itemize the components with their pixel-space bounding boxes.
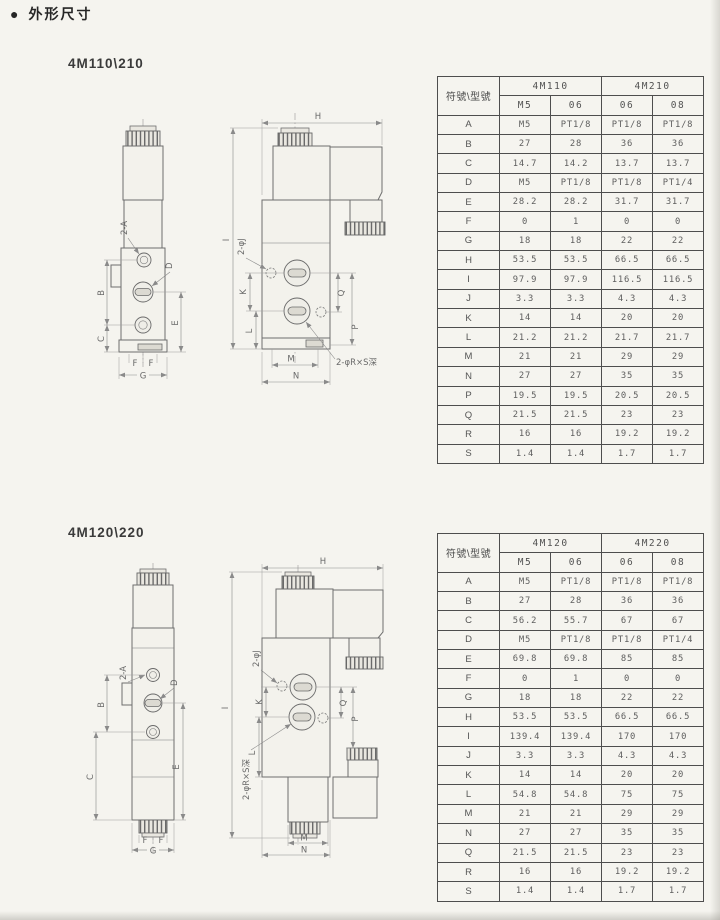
side-tab xyxy=(122,683,132,705)
dimension-value: 13.7 xyxy=(653,154,704,173)
dimension-value: 28 xyxy=(551,135,602,154)
table-row: I139.4139.4170170 xyxy=(438,727,704,746)
dimension-value: 35 xyxy=(602,367,653,386)
dim-label-f2: F xyxy=(149,359,154,369)
dim-label-f1: F xyxy=(143,836,148,846)
dimension-value: 4.3 xyxy=(602,746,653,765)
table-corner-header: 符號\型號 xyxy=(438,534,500,573)
front-view-4m110: H I 2-φJ K L Q P M N xyxy=(222,112,385,385)
dimension-value: 19.2 xyxy=(653,425,704,444)
dimension-value: 19.5 xyxy=(551,386,602,405)
dim-label-g: G xyxy=(150,847,157,857)
dimension-value: 53.5 xyxy=(500,708,551,727)
dim-label-q: Q xyxy=(337,289,347,296)
row-symbol: F xyxy=(438,212,500,231)
dimension-value: 28 xyxy=(551,592,602,611)
row-symbol: H xyxy=(438,251,500,270)
dimension-value: 21.5 xyxy=(551,843,602,862)
row-symbol: S xyxy=(438,882,500,901)
dimension-value: 18 xyxy=(551,688,602,707)
dimension-value: 22 xyxy=(602,688,653,707)
dimension-value: 14 xyxy=(500,309,551,328)
dimension-value: PT1/8 xyxy=(653,572,704,591)
dim-label-m: M xyxy=(300,834,307,844)
dimension-value: 170 xyxy=(602,727,653,746)
dimension-value: 1.7 xyxy=(602,444,653,463)
dimension-value: 18 xyxy=(500,231,551,250)
dimension-value: 75 xyxy=(653,785,704,804)
dim-label-2a: 2-A xyxy=(119,666,129,680)
dimension-value: 29 xyxy=(653,347,704,366)
port-size-header: M5 xyxy=(500,553,551,572)
dim-label-e: E xyxy=(172,764,182,769)
port-size-header: 06 xyxy=(602,553,653,572)
dimension-value: 69.8 xyxy=(551,650,602,669)
dimension-value: 4.3 xyxy=(653,289,704,308)
table-row: K14142020 xyxy=(438,766,704,785)
dimension-value: 19.2 xyxy=(602,862,653,881)
dimension-value: 97.9 xyxy=(500,270,551,289)
dimension-value: 23 xyxy=(602,405,653,424)
model-group-header: 4M220 xyxy=(602,534,704,553)
model-group-header: 4M120 xyxy=(500,534,602,553)
side-view-4m110: 2-A D B C E F F G xyxy=(97,119,186,382)
connector-housing-bottom xyxy=(333,777,377,818)
table-row: N27273535 xyxy=(438,367,704,386)
dim-label-l: L xyxy=(245,328,255,333)
dimension-value: 139.4 xyxy=(500,727,551,746)
dimension-value: 53.5 xyxy=(500,251,551,270)
row-symbol: N xyxy=(438,367,500,386)
solenoid-coil xyxy=(276,589,333,638)
table-row: J3.33.34.34.3 xyxy=(438,746,704,765)
dimension-value: 0 xyxy=(500,212,551,231)
table-row: L54.854.87575 xyxy=(438,785,704,804)
table-row: F0100 xyxy=(438,212,704,231)
model-group-header: 4M110 xyxy=(500,77,602,96)
dimension-value: 66.5 xyxy=(653,708,704,727)
table-row: Q21.521.52323 xyxy=(438,405,704,424)
dim-label-d: D xyxy=(165,262,175,269)
table-row: E28.228.231.731.7 xyxy=(438,193,704,212)
dimension-value: 66.5 xyxy=(653,251,704,270)
table-row: N27273535 xyxy=(438,824,704,843)
dimension-value: 27 xyxy=(500,592,551,611)
table-row: DM5PT1/8PT1/8PT1/4 xyxy=(438,630,704,649)
dimension-value: PT1/8 xyxy=(602,115,653,134)
row-symbol: I xyxy=(438,270,500,289)
dimension-value: 14 xyxy=(500,766,551,785)
dimension-value: 1.7 xyxy=(653,444,704,463)
dimension-value: 27 xyxy=(551,367,602,386)
row-symbol: B xyxy=(438,592,500,611)
dimension-value: 28.2 xyxy=(500,193,551,212)
dimension-value: 35 xyxy=(653,367,704,386)
dimension-value: 23 xyxy=(653,843,704,862)
port-size-header: 08 xyxy=(653,553,704,572)
dimension-value: 0 xyxy=(602,212,653,231)
row-symbol: I xyxy=(438,727,500,746)
dim-label-c: C xyxy=(97,336,107,342)
dimension-value: PT1/8 xyxy=(602,572,653,591)
table-row: P19.519.520.520.5 xyxy=(438,386,704,405)
port-size-header: 06 xyxy=(602,96,653,115)
dimension-value: 14.7 xyxy=(500,154,551,173)
row-symbol: K xyxy=(438,766,500,785)
table-row: DM5PT1/8PT1/8PT1/4 xyxy=(438,173,704,192)
dimension-value: 27 xyxy=(500,367,551,386)
table-row: S1.41.41.71.7 xyxy=(438,444,704,463)
table-row: H53.553.566.566.5 xyxy=(438,251,704,270)
dimension-value: 19.2 xyxy=(602,425,653,444)
dimension-value: 29 xyxy=(602,804,653,823)
dimension-value: 35 xyxy=(653,824,704,843)
dimension-value: 21.7 xyxy=(653,328,704,347)
dimension-value: 75 xyxy=(602,785,653,804)
dimension-value: 21 xyxy=(500,347,551,366)
table-row: AM5PT1/8PT1/8PT1/8 xyxy=(438,572,704,591)
dimension-value: 1.4 xyxy=(500,444,551,463)
dimension-value: 1 xyxy=(551,212,602,231)
dimension-value: PT1/4 xyxy=(653,630,704,649)
dim-label-f1: F xyxy=(133,359,138,369)
port-size-header: 06 xyxy=(551,96,602,115)
dimension-value: PT1/4 xyxy=(653,173,704,192)
dimension-value: 66.5 xyxy=(602,708,653,727)
page-heading: ● 外形尺寸 xyxy=(10,4,92,24)
dim-label-f2: F xyxy=(159,836,164,846)
table-row: H53.553.566.566.5 xyxy=(438,708,704,727)
row-symbol: P xyxy=(438,386,500,405)
dimension-value: M5 xyxy=(500,630,551,649)
dimension-value: PT1/8 xyxy=(551,630,602,649)
row-symbol: C xyxy=(438,154,500,173)
solenoid-cap-ribs-bottom xyxy=(290,822,320,834)
dim-label-n: N xyxy=(301,846,307,856)
dimension-value: 22 xyxy=(653,688,704,707)
dim-label-2phir: 2-φR×S深 xyxy=(336,358,378,368)
table-row: C14.714.213.713.7 xyxy=(438,154,704,173)
dimension-value: 23 xyxy=(602,843,653,862)
row-symbol: J xyxy=(438,289,500,308)
row-symbol: G xyxy=(438,231,500,250)
row-symbol: Q xyxy=(438,843,500,862)
dim-label-i: I xyxy=(222,239,232,242)
row-symbol: D xyxy=(438,173,500,192)
catalog-page: { "page": { "bullet": "●", "heading": "外… xyxy=(0,0,720,920)
dimension-value: 4.3 xyxy=(602,289,653,308)
dimension-value: 1.7 xyxy=(653,882,704,901)
cable-gland-ribs xyxy=(346,657,383,669)
dimension-value: 1 xyxy=(551,669,602,688)
dimension-value: PT1/8 xyxy=(602,173,653,192)
dim-label-n: N xyxy=(293,372,299,382)
row-symbol: B xyxy=(438,135,500,154)
dimension-value: 67 xyxy=(653,611,704,630)
row-symbol: S xyxy=(438,444,500,463)
solenoid-coil xyxy=(273,146,330,200)
dimension-value: 21.7 xyxy=(602,328,653,347)
dimension-value: 170 xyxy=(653,727,704,746)
table-row: E69.869.88585 xyxy=(438,650,704,669)
table-row: I97.997.9116.5116.5 xyxy=(438,270,704,289)
dimension-value: 14.2 xyxy=(551,154,602,173)
section2-title: 4M120\220 xyxy=(68,525,145,540)
section1-title: 4M110\210 xyxy=(68,56,144,71)
dimension-value: 116.5 xyxy=(602,270,653,289)
dimension-value: 54.8 xyxy=(500,785,551,804)
row-symbol: C xyxy=(438,611,500,630)
dimension-table-4m120-220: 符號\型號 4M120 4M220 M5 06 06 08 AM5PT1/8PT… xyxy=(437,533,704,902)
front-view-4m120: H I 2-φJ K L 2-φR×S深 Q P xyxy=(221,557,383,858)
dimension-value: PT1/8 xyxy=(602,630,653,649)
dimension-value: 29 xyxy=(602,347,653,366)
solenoid-coil xyxy=(133,585,173,628)
solenoid-cap-ribs-bottom xyxy=(139,820,167,833)
dimension-value: 28.2 xyxy=(551,193,602,212)
dimension-value: 31.7 xyxy=(602,193,653,212)
dimension-value: 16 xyxy=(551,862,602,881)
table-row: K14142020 xyxy=(438,309,704,328)
dimension-value: 16 xyxy=(500,425,551,444)
valve-body xyxy=(132,628,174,820)
dimension-value: 27 xyxy=(500,135,551,154)
dimension-value: 22 xyxy=(653,231,704,250)
dimension-value: 1.4 xyxy=(551,444,602,463)
model-group-header: 4M210 xyxy=(602,77,704,96)
row-symbol: F xyxy=(438,669,500,688)
row-symbol: R xyxy=(438,862,500,881)
drawing-4m120-220: 2-A D B C E F F G H xyxy=(60,553,440,913)
dimension-value: 21.2 xyxy=(551,328,602,347)
dimension-value: 97.9 xyxy=(551,270,602,289)
table-row: G18182222 xyxy=(438,231,704,250)
cable-gland-ribs xyxy=(345,222,385,235)
dimension-value: 20 xyxy=(653,766,704,785)
solenoid-cap-ribs xyxy=(282,576,314,589)
table-row: R161619.219.2 xyxy=(438,425,704,444)
dimension-value: 18 xyxy=(551,231,602,250)
dim-label-b: B xyxy=(97,290,107,296)
row-symbol: E xyxy=(438,650,500,669)
row-symbol: D xyxy=(438,630,500,649)
table-row: Q21.521.52323 xyxy=(438,843,704,862)
dim-label-h: H xyxy=(315,112,321,122)
dimension-value: PT1/8 xyxy=(551,173,602,192)
dimension-value: 21 xyxy=(500,804,551,823)
dimension-value: PT1/8 xyxy=(551,115,602,134)
dimension-value: 116.5 xyxy=(653,270,704,289)
solenoid-cap-ribs xyxy=(137,573,169,585)
dimension-value: 22 xyxy=(602,231,653,250)
row-symbol: R xyxy=(438,425,500,444)
solenoid-coil xyxy=(123,146,163,200)
row-symbol: E xyxy=(438,193,500,212)
port-size-header: 08 xyxy=(653,96,704,115)
dimension-value: M5 xyxy=(500,572,551,591)
dimension-value: 3.3 xyxy=(551,289,602,308)
port-size-header: 06 xyxy=(551,553,602,572)
dim-label-2phir: 2-φR×S深 xyxy=(242,758,252,800)
table-row: G18182222 xyxy=(438,688,704,707)
dim-label-k: K xyxy=(239,289,249,295)
dimension-value: 36 xyxy=(602,592,653,611)
dimension-value: 27 xyxy=(551,824,602,843)
row-symbol: G xyxy=(438,688,500,707)
row-symbol: L xyxy=(438,785,500,804)
table-row: J3.33.34.34.3 xyxy=(438,289,704,308)
dimension-value: 13.7 xyxy=(602,154,653,173)
dim-label-p: P xyxy=(351,716,361,721)
page-title: 外形尺寸 xyxy=(28,4,92,24)
dimension-value: 4.3 xyxy=(653,746,704,765)
dimension-value: 16 xyxy=(500,862,551,881)
dimension-value: 20 xyxy=(602,766,653,785)
row-symbol: A xyxy=(438,115,500,134)
dimension-value: 53.5 xyxy=(551,708,602,727)
dimension-value: 31.7 xyxy=(653,193,704,212)
row-symbol: Q xyxy=(438,405,500,424)
bullet-icon: ● xyxy=(10,7,20,21)
row-symbol: M xyxy=(438,347,500,366)
table-row: F0100 xyxy=(438,669,704,688)
dimension-value: 3.3 xyxy=(500,746,551,765)
dimension-value: 14 xyxy=(551,766,602,785)
dim-label-k: K xyxy=(255,699,265,705)
dimension-value: 21.2 xyxy=(500,328,551,347)
dim-label-2a: 2-A xyxy=(120,221,130,235)
solenoid-cap-ribs xyxy=(126,131,160,146)
dimension-value: 85 xyxy=(602,650,653,669)
dimension-value: 21.5 xyxy=(551,405,602,424)
dimension-value: 1.4 xyxy=(551,882,602,901)
dimension-value: M5 xyxy=(500,173,551,192)
dimension-value: 18 xyxy=(500,688,551,707)
table-row: B27283636 xyxy=(438,592,704,611)
dimension-value: 20 xyxy=(653,309,704,328)
dimension-value: 21 xyxy=(551,804,602,823)
side-view-4m120: 2-A D B C E F F G xyxy=(86,563,186,857)
dim-label-m: M xyxy=(287,355,294,365)
scan-edge-right xyxy=(710,0,720,920)
dim-label-h: H xyxy=(320,557,326,567)
dimension-value: 35 xyxy=(602,824,653,843)
dimension-value: PT1/8 xyxy=(551,572,602,591)
port-size-header: M5 xyxy=(500,96,551,115)
table-header-row: 符號\型號 4M120 4M220 xyxy=(438,534,704,553)
dim-label-2phij: 2-φJ xyxy=(252,650,262,667)
dim-label-g: G xyxy=(140,372,147,382)
cable-gland-ribs-bottom xyxy=(347,748,377,760)
dimension-value: 1.7 xyxy=(602,882,653,901)
dimension-value: 21.5 xyxy=(500,843,551,862)
dimension-value: 56.2 xyxy=(500,611,551,630)
dim-label-p: P xyxy=(351,324,361,329)
dimension-value: 85 xyxy=(653,650,704,669)
dimension-value: 0 xyxy=(500,669,551,688)
side-tab xyxy=(111,265,121,287)
row-symbol: A xyxy=(438,572,500,591)
dimension-value: PT1/8 xyxy=(653,115,704,134)
solenoid-cap-ribs xyxy=(278,133,312,146)
dimension-value: 0 xyxy=(653,212,704,231)
dimension-value: M5 xyxy=(500,115,551,134)
dimension-value: 69.8 xyxy=(500,650,551,669)
dimension-value: 21 xyxy=(551,347,602,366)
dim-label-i: I xyxy=(221,707,231,710)
dimension-value: 53.5 xyxy=(551,251,602,270)
table-row: L21.221.221.721.7 xyxy=(438,328,704,347)
connector-housing xyxy=(333,590,383,638)
table-row: R161619.219.2 xyxy=(438,862,704,881)
row-symbol: K xyxy=(438,309,500,328)
dimension-value: 0 xyxy=(653,669,704,688)
table-row: C56.255.76767 xyxy=(438,611,704,630)
dimension-value: 36 xyxy=(653,592,704,611)
row-symbol: H xyxy=(438,708,500,727)
dim-label-2phij: 2-φJ xyxy=(237,238,247,255)
dim-label-q: Q xyxy=(339,699,349,706)
dimension-value: 36 xyxy=(653,135,704,154)
dimension-value: 14 xyxy=(551,309,602,328)
dimension-value: 1.4 xyxy=(500,882,551,901)
dimension-value: 29 xyxy=(653,804,704,823)
dimension-value: 21.5 xyxy=(500,405,551,424)
row-symbol: M xyxy=(438,804,500,823)
dimension-value: 20 xyxy=(602,309,653,328)
row-symbol: N xyxy=(438,824,500,843)
dim-label-l: L xyxy=(248,750,258,755)
drawing-4m110-210: 2-A D B C E F F G H xyxy=(60,95,440,435)
dimension-value: 139.4 xyxy=(551,727,602,746)
row-symbol: J xyxy=(438,746,500,765)
dim-label-d: D xyxy=(170,679,180,686)
dimension-value: 27 xyxy=(500,824,551,843)
dimension-value: 20.5 xyxy=(653,386,704,405)
dimension-value: 67 xyxy=(602,611,653,630)
dimension-value: 36 xyxy=(602,135,653,154)
connector-housing xyxy=(330,147,382,200)
dimension-value: 54.8 xyxy=(551,785,602,804)
dimension-table-4m110-210: 符號\型號 4M110 4M210 M5 06 06 08 AM5PT1/8PT… xyxy=(437,76,704,464)
table-row: B27283636 xyxy=(438,135,704,154)
dimension-value: 16 xyxy=(551,425,602,444)
dimension-value: 20.5 xyxy=(602,386,653,405)
table-corner-header: 符號\型號 xyxy=(438,77,500,116)
table-row: M21212929 xyxy=(438,804,704,823)
dimension-value: 3.3 xyxy=(551,746,602,765)
solenoid-bottom xyxy=(288,777,328,822)
dim-label-e: E xyxy=(171,320,181,325)
dimension-value: 23 xyxy=(653,405,704,424)
table-row: AM5PT1/8PT1/8PT1/8 xyxy=(438,115,704,134)
dimension-value: 3.3 xyxy=(500,289,551,308)
row-symbol: L xyxy=(438,328,500,347)
dimension-value: 19.2 xyxy=(653,862,704,881)
dimension-value: 66.5 xyxy=(602,251,653,270)
table-row: S1.41.41.71.7 xyxy=(438,882,704,901)
dimension-value: 19.5 xyxy=(500,386,551,405)
dimension-value: 0 xyxy=(602,669,653,688)
dim-label-c: C xyxy=(86,774,96,780)
dimension-value: 55.7 xyxy=(551,611,602,630)
dim-label-b: B xyxy=(97,702,107,708)
table-header-row: 符號\型號 4M110 4M210 xyxy=(438,77,704,96)
table-row: M21212929 xyxy=(438,347,704,366)
